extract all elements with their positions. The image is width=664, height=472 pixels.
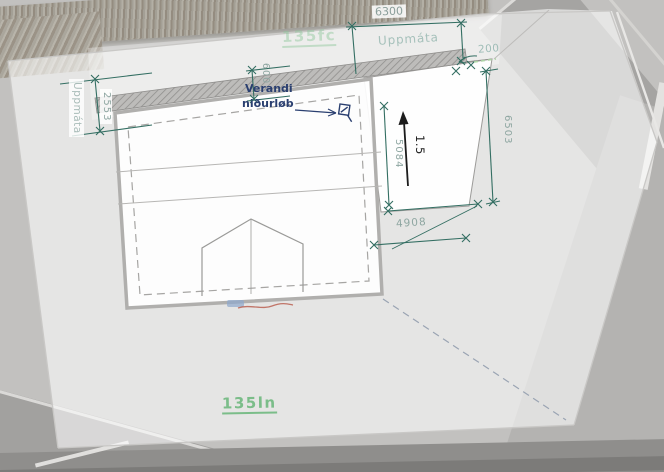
site-plan-canvas: 6300 Uppmáta 135fc 200 Uppmáta 2553 600 …: [0, 0, 664, 472]
dimension-right-height: 6503: [502, 115, 512, 144]
dashed-boundary-diagonal: [383, 299, 566, 420]
parcel-label-135ln: 135ln: [222, 396, 277, 415]
dimension-top-width: 6300: [372, 4, 406, 18]
parcel-label-135fc: 135fc: [282, 28, 337, 48]
house-outline: [115, 79, 382, 308]
slope-value-label: 1.5: [414, 135, 426, 155]
site-plan-drawing: [0, 0, 664, 472]
downspout-annotation-line1: Verandi: [245, 83, 293, 94]
blue-sketch-mark: [227, 300, 244, 307]
red-sketch-mark: [238, 304, 293, 308]
downspout-annotation-line2: niðurløb: [242, 98, 294, 109]
uppmata-label-top: Uppmáta: [378, 31, 439, 47]
dimension-extension-left-height: 5084: [393, 139, 403, 168]
dimension-band-height: 600: [261, 63, 271, 84]
road-edge-line: [617, 12, 664, 148]
extension-outline: [364, 59, 492, 212]
uppmata-label-left: Uppmáta: [70, 79, 85, 137]
dimension-extension-bottom-width: 4908: [396, 217, 427, 230]
dimension-offset-top-right: 200: [478, 43, 500, 55]
dimension-left-height: 2553: [100, 89, 112, 124]
